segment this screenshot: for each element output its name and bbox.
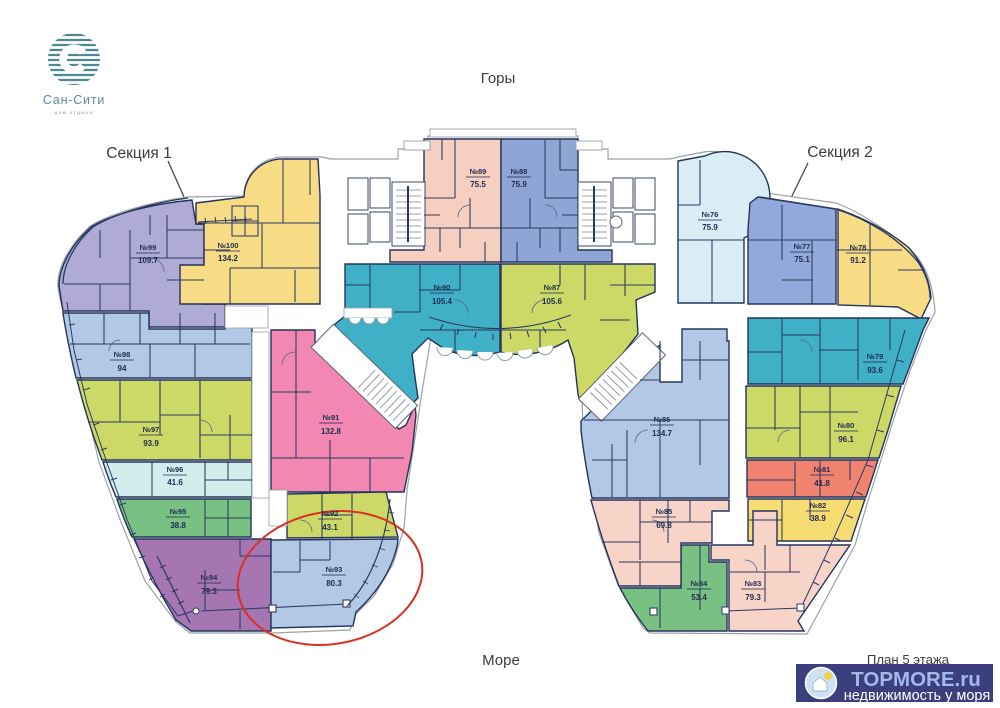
svg-text:75.9: 75.9 [511, 180, 527, 189]
svg-text:93.6: 93.6 [867, 366, 883, 375]
svg-text:№94: №94 [201, 573, 219, 582]
svg-text:№95: №95 [170, 507, 187, 516]
svg-text:№90: №90 [434, 283, 451, 292]
svg-text:№100: №100 [218, 241, 239, 250]
svg-text:80.3: 80.3 [326, 579, 342, 588]
svg-text:41.6: 41.6 [167, 478, 183, 487]
svg-text:№87: №87 [544, 283, 561, 292]
svg-text:96.1: 96.1 [838, 435, 854, 444]
svg-text:№97: №97 [143, 425, 160, 434]
svg-text:№84: №84 [691, 579, 709, 588]
svg-text:69.8: 69.8 [656, 521, 672, 530]
svg-text:134.2: 134.2 [218, 254, 239, 263]
svg-text:132.8: 132.8 [321, 427, 342, 436]
svg-text:79.3: 79.3 [201, 587, 217, 596]
svg-text:91.2: 91.2 [850, 256, 866, 265]
svg-text:79.3: 79.3 [745, 593, 761, 602]
svg-text:№89: №89 [470, 167, 487, 176]
svg-text:№77: №77 [794, 242, 811, 251]
svg-text:№81: №81 [814, 465, 831, 474]
svg-text:53.4: 53.4 [691, 593, 707, 602]
svg-text:№98: №98 [114, 350, 131, 359]
svg-text:105.4: 105.4 [432, 297, 453, 306]
svg-text:Горы: Горы [481, 70, 516, 87]
svg-text:№96: №96 [167, 465, 184, 474]
svg-text:75.5: 75.5 [470, 180, 486, 189]
svg-text:75.9: 75.9 [702, 223, 718, 232]
svg-text:94: 94 [118, 364, 127, 373]
svg-text:№91: №91 [323, 413, 340, 422]
svg-text:№82: №82 [810, 501, 827, 510]
svg-text:№85: №85 [656, 507, 673, 516]
svg-text:105.6: 105.6 [542, 297, 563, 306]
svg-text:38.9: 38.9 [810, 514, 826, 523]
svg-text:43.1: 43.1 [322, 523, 338, 532]
svg-text:№76: №76 [702, 210, 719, 219]
svg-text:Море: Море [482, 652, 520, 669]
svg-text:№80: №80 [838, 421, 855, 430]
svg-text:№88: №88 [511, 167, 528, 176]
svg-text:93.9: 93.9 [143, 439, 159, 448]
svg-text:Сан-Сити: Сан-Сити [43, 93, 105, 107]
svg-text:недвижимость у моря: недвижимость у моря [844, 688, 990, 704]
svg-text:109.7: 109.7 [138, 256, 159, 265]
svg-text:№86: №86 [654, 415, 671, 424]
svg-text:№99: №99 [140, 243, 157, 252]
svg-text:№92: №92 [322, 509, 339, 518]
svg-text:№93: №93 [326, 565, 343, 574]
svg-text:38.8: 38.8 [170, 521, 186, 530]
svg-text:№78: №78 [850, 243, 867, 252]
svg-text:134.7: 134.7 [652, 429, 673, 438]
svg-text:41.8: 41.8 [814, 479, 830, 488]
svg-text:Секция 1: Секция 1 [106, 145, 171, 162]
svg-text:Секция 2: Секция 2 [807, 144, 872, 161]
svg-text:№79: №79 [867, 352, 884, 361]
svg-text:дом отдыха: дом отдыха [54, 110, 93, 115]
svg-text:№83: №83 [745, 579, 762, 588]
svg-text:75.1: 75.1 [794, 255, 810, 264]
